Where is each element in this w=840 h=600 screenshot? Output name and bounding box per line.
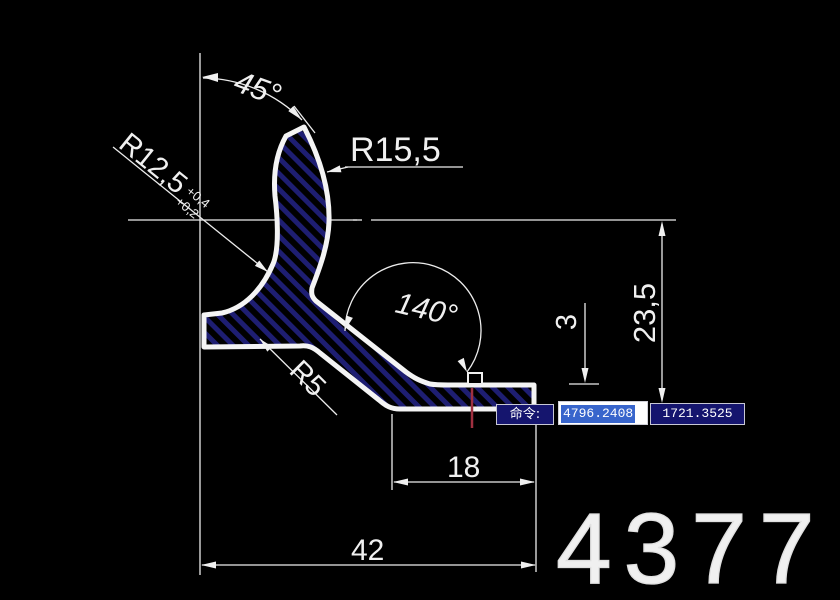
dim-text-r15-5: R15,5 (350, 131, 441, 169)
coordinate-x-value[interactable]: 4796.2408 (561, 405, 635, 423)
cad-viewport: { "drawing": { "part_number": "4377", "d… (0, 0, 840, 600)
profile-outline (204, 127, 534, 409)
command-prompt-box: 命令: (496, 404, 554, 425)
arrowhead (659, 221, 666, 236)
arrowhead (521, 562, 536, 569)
dim-text-45: 45° (230, 64, 286, 113)
coordinate-y-value[interactable]: 1721.3525 (662, 406, 732, 421)
drawing-canvas: 45° R12,5 +0,4 +0,2 R15,5 140° R5 3 (0, 0, 840, 600)
arrowhead (520, 479, 535, 486)
dim-text-r5: R5 (283, 354, 332, 403)
arrowhead (458, 358, 467, 372)
coordinate-x-field[interactable]: 4796.2408 (558, 401, 648, 425)
profile-section[interactable] (204, 127, 534, 409)
coordinate-y-field[interactable]: 1721.3525 (650, 403, 745, 425)
dim-height-23-5[interactable]: 23,5 (627, 221, 666, 403)
part-number-text[interactable]: 4377 (556, 493, 826, 600)
dim-thickness-3[interactable]: 3 (551, 303, 599, 384)
command-prompt-label: 命令: (510, 407, 540, 422)
dim-radius-12-5[interactable]: R12,5 +0,4 +0,2 (110, 127, 268, 272)
dim-length-18[interactable]: 18 (392, 414, 535, 490)
dim-text-r12-5: R12,5 (113, 127, 193, 201)
dim-text-42: 42 (351, 534, 384, 567)
dim-text-3: 3 (551, 314, 583, 330)
dim-length-42[interactable]: 42 (201, 534, 536, 569)
vertex-marker-square (468, 373, 482, 384)
arrowhead (659, 388, 666, 403)
dim-text-18: 18 (447, 451, 480, 484)
arrowhead (201, 562, 216, 569)
arrowhead (327, 165, 341, 172)
dim-radius-15-5[interactable]: R15,5 (327, 131, 463, 172)
dim-angle-45[interactable]: 45° (202, 64, 315, 133)
arrowhead (202, 73, 218, 82)
arrowhead (582, 368, 589, 383)
dim-text-140: 140° (392, 287, 460, 333)
dim-text-23-5: 23,5 (627, 283, 662, 343)
arrowhead (393, 479, 408, 486)
